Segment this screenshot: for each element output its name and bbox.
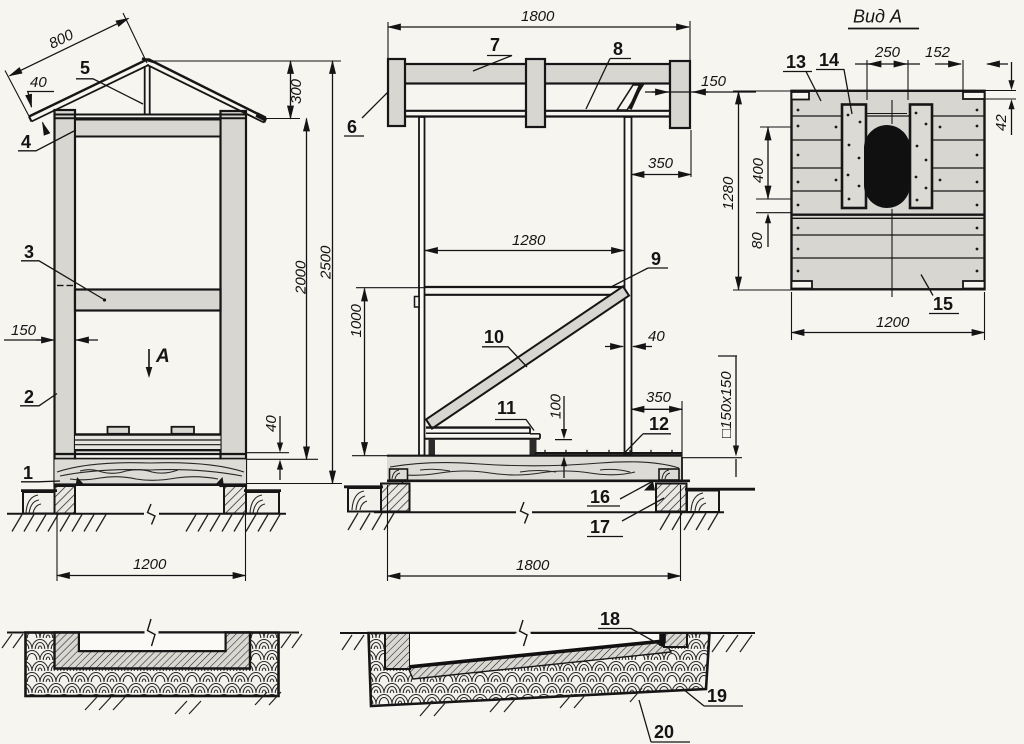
svg-text:15: 15 <box>933 294 953 314</box>
svg-text:80: 80 <box>749 232 766 249</box>
svg-text:150: 150 <box>11 322 37 339</box>
svg-text:1280: 1280 <box>720 176 737 210</box>
svg-text:40: 40 <box>648 328 665 345</box>
svg-text:6: 6 <box>347 117 357 137</box>
svg-text:□150x150: □150x150 <box>718 371 735 438</box>
svg-text:100: 100 <box>548 393 565 419</box>
svg-text:350: 350 <box>646 389 672 406</box>
svg-text:350: 350 <box>648 155 674 172</box>
svg-text:1800: 1800 <box>516 557 550 574</box>
svg-text:9: 9 <box>651 249 661 269</box>
svg-text:1200: 1200 <box>876 314 910 331</box>
svg-text:40: 40 <box>263 415 280 432</box>
svg-text:400: 400 <box>750 157 767 183</box>
svg-text:4: 4 <box>21 132 31 152</box>
svg-text:1000: 1000 <box>348 303 365 337</box>
svg-text:150: 150 <box>701 73 727 90</box>
svg-text:152: 152 <box>925 44 951 61</box>
svg-text:1200: 1200 <box>133 556 167 573</box>
svg-text:1280: 1280 <box>512 232 546 249</box>
svg-text:40: 40 <box>30 74 47 91</box>
svg-text:A: A <box>155 346 170 367</box>
svg-text:2500: 2500 <box>318 245 335 280</box>
svg-text:13: 13 <box>786 52 806 72</box>
svg-text:10: 10 <box>484 327 504 347</box>
svg-text:17: 17 <box>590 517 610 537</box>
svg-text:8: 8 <box>613 39 623 59</box>
svg-text:2: 2 <box>24 387 34 407</box>
svg-text:19: 19 <box>707 686 727 706</box>
svg-text:5: 5 <box>80 58 90 78</box>
svg-text:Вид А: Вид А <box>853 7 902 27</box>
svg-text:12: 12 <box>649 414 669 434</box>
svg-text:42: 42 <box>993 114 1010 131</box>
svg-text:3: 3 <box>24 242 34 262</box>
svg-text:300: 300 <box>288 78 305 104</box>
svg-text:11: 11 <box>497 398 516 418</box>
svg-text:18: 18 <box>600 609 620 629</box>
svg-text:250: 250 <box>874 44 901 61</box>
svg-text:16: 16 <box>590 487 610 507</box>
svg-text:1: 1 <box>23 463 33 483</box>
svg-text:20: 20 <box>654 722 674 742</box>
svg-text:7: 7 <box>490 35 500 55</box>
svg-text:1800: 1800 <box>521 8 555 25</box>
svg-text:14: 14 <box>819 50 839 70</box>
svg-text:2000: 2000 <box>293 260 310 295</box>
